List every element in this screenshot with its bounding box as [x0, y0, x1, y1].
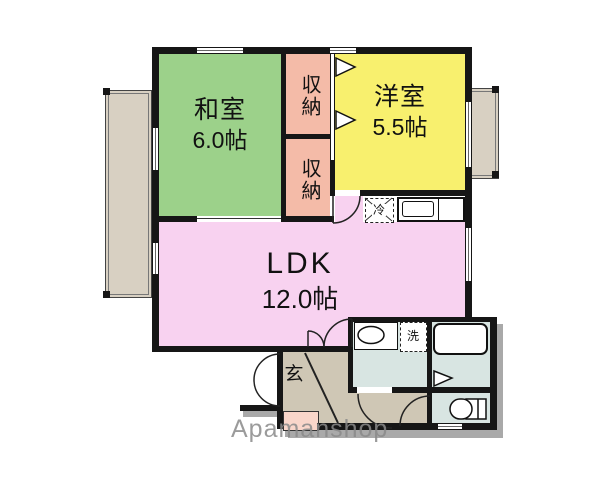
wall-washroom-left: [348, 322, 353, 393]
wall-bath-toilet: [427, 387, 497, 393]
window-washitsu-left: [152, 128, 159, 170]
balcony-right-inner: [469, 91, 496, 176]
counter-divider: [438, 197, 439, 222]
genkan-label: 玄: [282, 363, 306, 387]
ldk-size: 12.0帖: [140, 283, 460, 316]
window-ldk-right: [465, 228, 472, 281]
floor-plan: 和室 6.0帖 収納 収納 洋室 5.5帖 LDK 12.0帖 玄 冷 洗 Ap…: [0, 0, 600, 480]
watermark: Apamanshop: [231, 415, 391, 444]
balcony-right-corner-top: [492, 86, 499, 93]
balcony-left-corner-bottom: [103, 291, 110, 298]
wall-closet-mid: [281, 134, 334, 139]
closet-lower-label: 収納: [296, 147, 321, 213]
window-toilet-bottom: [438, 423, 462, 430]
washitsu-size: 6.0帖: [159, 126, 281, 155]
wall-bottom-b: [462, 423, 497, 430]
washitsu-label: 和室 6.0帖: [159, 95, 281, 155]
wall-washroom-bottom-a: [353, 387, 357, 393]
wall-ldk-bottom: [152, 346, 352, 352]
closet-upper-label: 収納: [296, 63, 321, 129]
wall-right-lower: [490, 317, 497, 430]
ldk-name: LDK: [140, 245, 460, 283]
washbasin-unit: [354, 322, 398, 350]
window-washitsu-top: [197, 47, 243, 54]
ldk-label: LDK 12.0帖: [140, 245, 460, 315]
washitsu-name: 和室: [159, 95, 281, 126]
sliding-door-washitsu-ldk: [197, 216, 281, 222]
balcony-right-corner-bottom: [492, 171, 499, 178]
washing-machine-label: 洗: [406, 330, 420, 342]
shadow-right: [497, 324, 503, 430]
wall-porch-stub: [240, 405, 283, 411]
window-youshitsu-top: [330, 47, 356, 54]
balcony-left-corner-top: [103, 88, 110, 95]
youshitsu-size: 5.5帖: [335, 113, 465, 142]
window-youshitsu-right: [465, 102, 472, 167]
wall-toilet-left: [427, 393, 432, 423]
bathtub: [433, 323, 488, 355]
ldk-passage-floor: [335, 196, 363, 222]
wall-youshitsu-bottom: [360, 190, 465, 196]
refrigerator-label: 冷: [372, 204, 386, 216]
wall-wash-bath: [427, 322, 432, 387]
wall-washroom-bottom-b: [392, 387, 427, 393]
wall-youshitsu-left-lower: [330, 160, 335, 196]
toilet-floor: [432, 393, 490, 423]
youshitsu-label: 洋室 5.5帖: [335, 82, 465, 142]
youshitsu-name: 洋室: [335, 82, 465, 113]
kitchen-sink: [402, 201, 434, 217]
